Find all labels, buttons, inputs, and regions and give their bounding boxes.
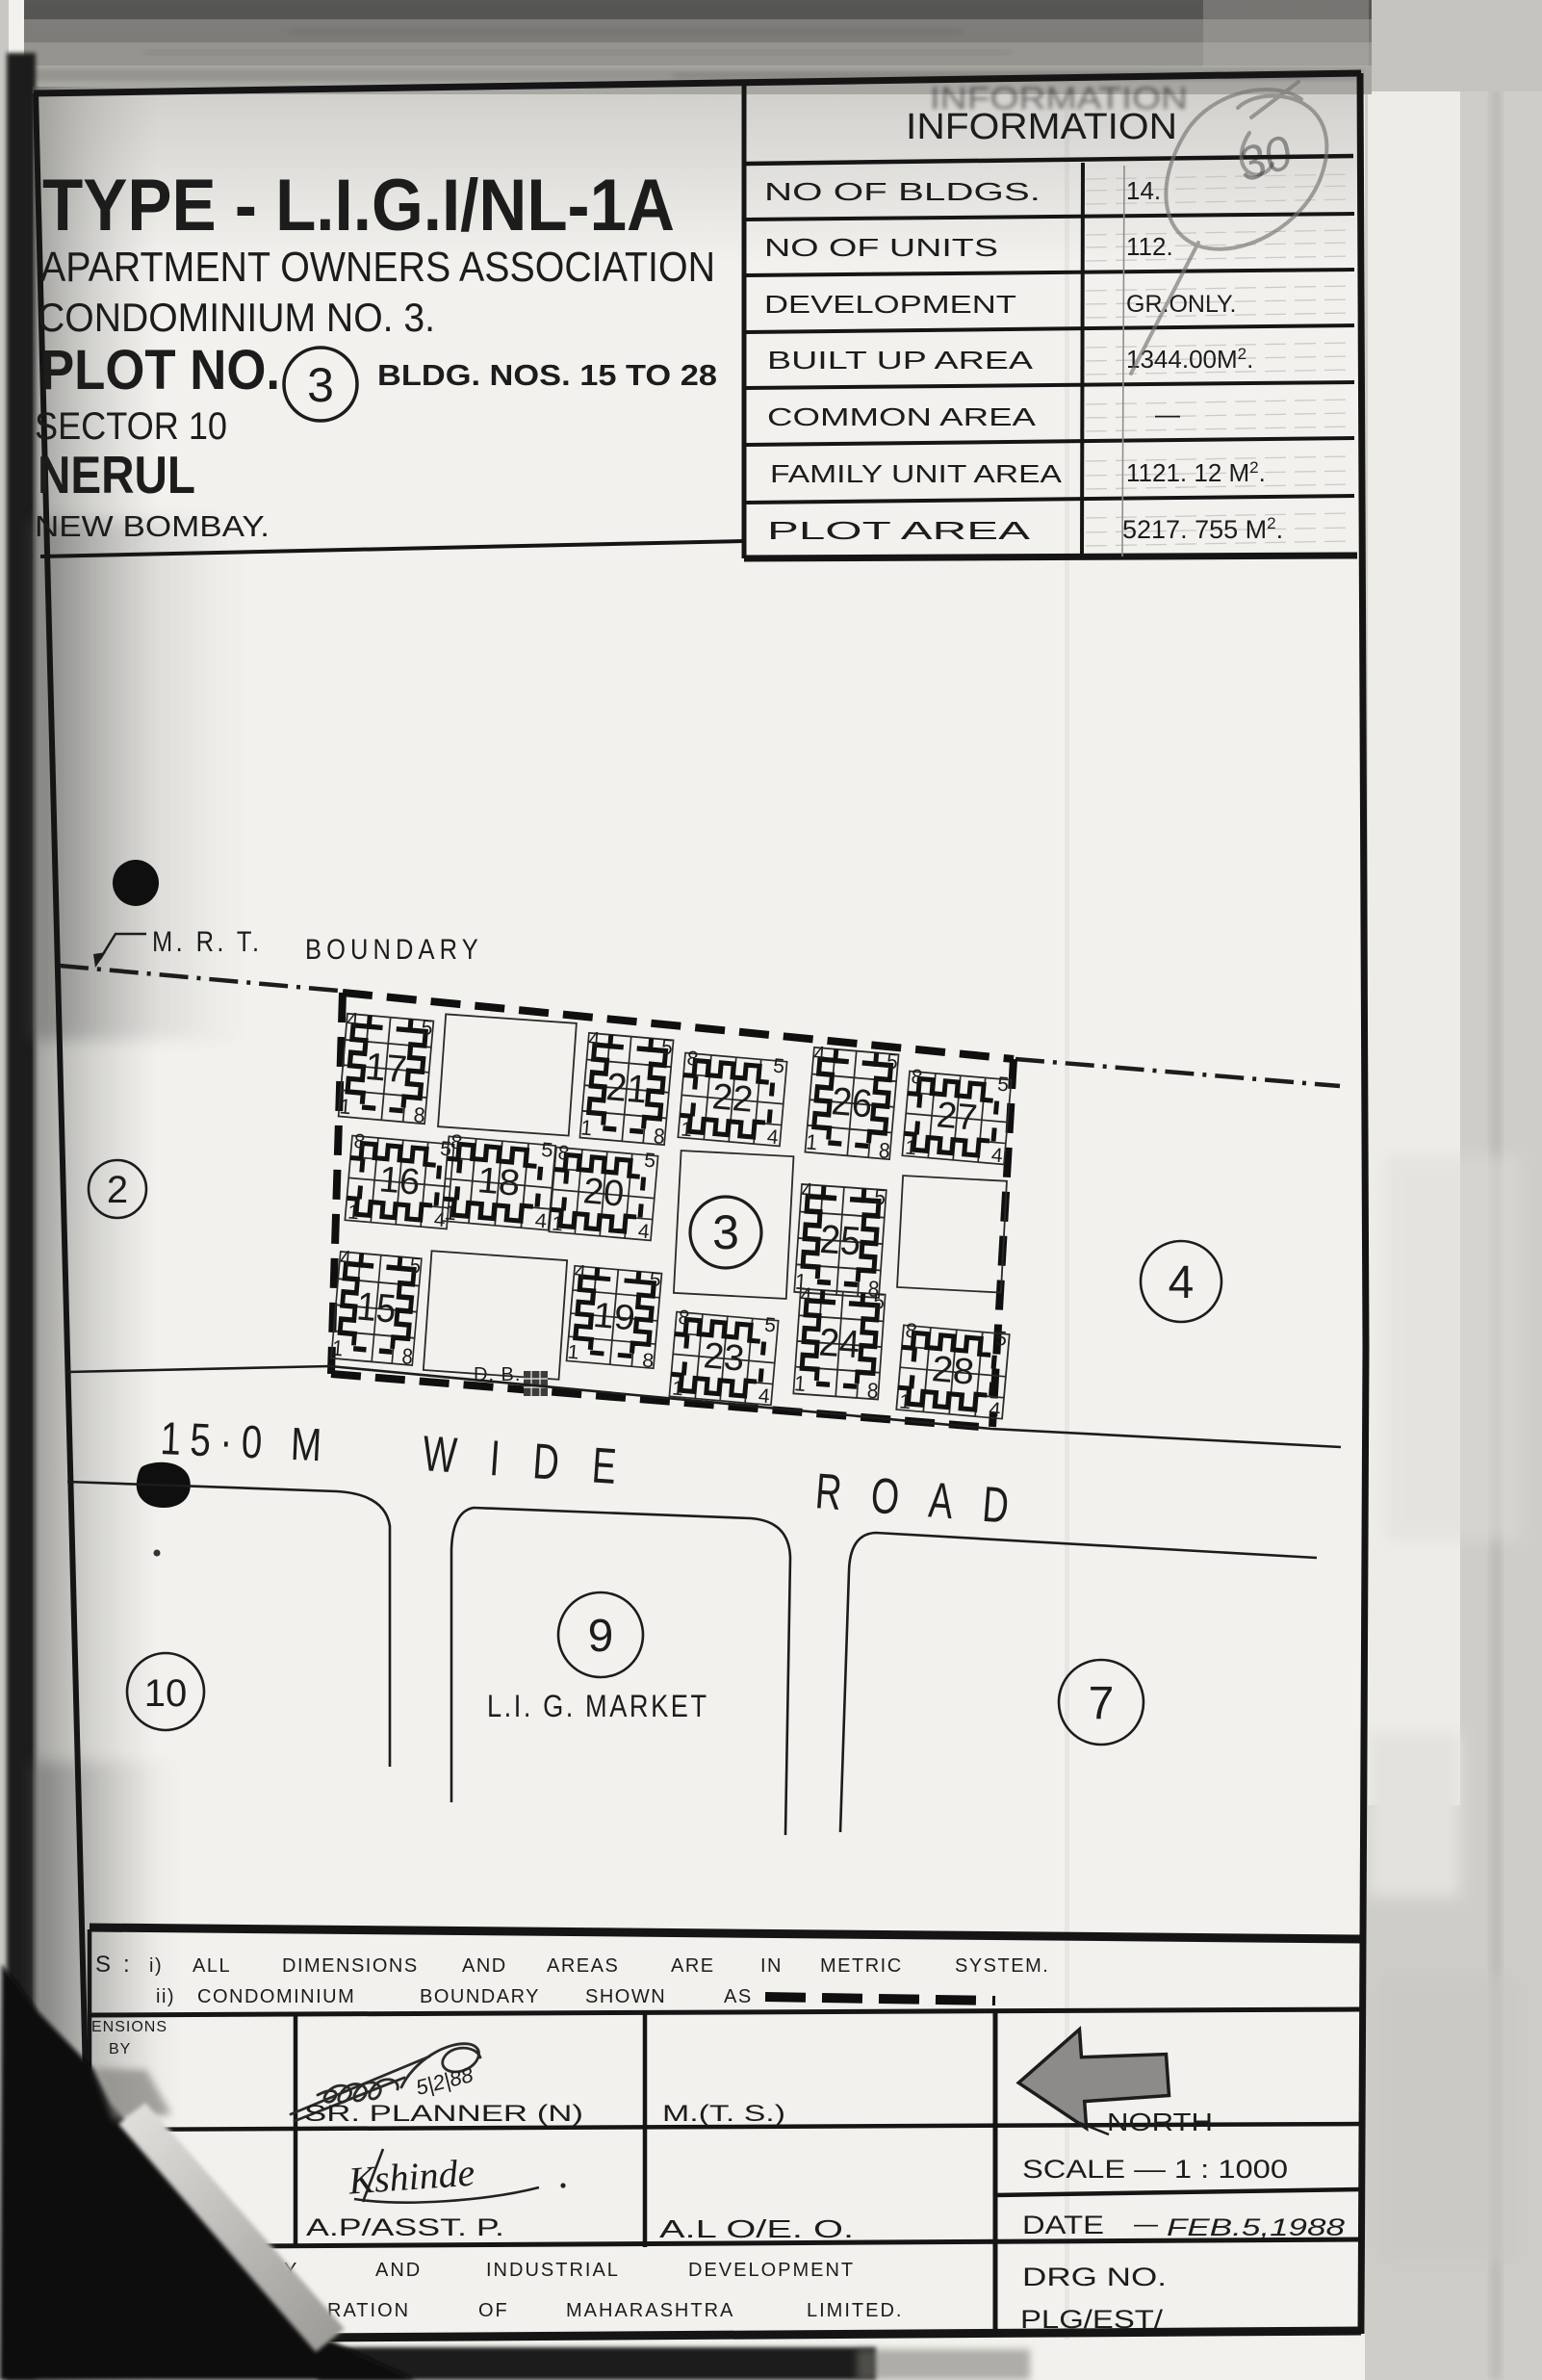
svg-text:5: 5 [421,1015,434,1040]
svg-text:4: 4 [990,1144,1004,1167]
svg-text:25: 25 [818,1217,861,1264]
svg-text:PLOT AREA: PLOT AREA [767,516,1031,545]
svg-text:3: 3 [307,358,334,412]
svg-text:5: 5 [996,1074,1010,1097]
svg-text:8: 8 [353,1130,367,1153]
svg-text:8: 8 [401,1343,414,1369]
svg-text:9: 9 [588,1611,614,1662]
svg-text:15·0 M: 15·0 M [160,1413,332,1472]
svg-text:NERUL: NERUL [38,445,195,504]
svg-text:4: 4 [812,1041,826,1067]
svg-text:L.I. G. MARKET: L.I. G. MARKET [487,1690,709,1724]
svg-text:GR.ONLY.: GR.ONLY. [1126,291,1236,318]
svg-text:28: 28 [930,1349,975,1393]
svg-text:—: — [1155,400,1180,428]
svg-text:1: 1 [579,1115,593,1141]
svg-text:112.: 112. [1126,232,1173,261]
svg-text:4: 4 [800,1282,812,1308]
svg-text:1: 1 [904,1136,917,1159]
svg-text:5: 5 [872,1288,885,1314]
svg-text:4: 4 [534,1209,548,1232]
svg-text:17: 17 [364,1045,409,1091]
svg-text:1: 1 [805,1129,818,1155]
svg-text:14.: 14. [1126,176,1161,205]
svg-text:BLDG. NOS. 15 TO 28: BLDG. NOS. 15 TO 28 [377,358,717,392]
svg-text:FEB.5,1988: FEB.5,1988 [1167,2214,1345,2241]
svg-text:1121. 12 M2.: 1121. 12 M2. [1126,458,1266,487]
svg-text:16: 16 [377,1159,422,1203]
svg-text:5: 5 [540,1138,553,1161]
svg-text:A.L O/E. O.: A.L O/E. O. [659,2214,854,2243]
svg-text:15: 15 [355,1284,398,1332]
svg-text:4: 4 [339,1245,351,1271]
svg-text:8: 8 [653,1124,666,1150]
svg-text:8: 8 [678,1306,691,1330]
svg-text:8: 8 [866,1378,879,1404]
svg-text:BUILT UP AREA: BUILT UP AREA [767,346,1034,375]
svg-text:5: 5 [772,1055,785,1078]
svg-text:PLG/EST/: PLG/EST/ [1020,2305,1164,2334]
svg-text:TYPE - L.I.G.I/NL-1A: TYPE - L.I.G.I/NL-1A [42,165,675,246]
svg-text:4: 4 [801,1177,813,1203]
svg-text:1: 1 [793,1371,806,1397]
svg-text:4: 4 [1169,1257,1195,1308]
svg-text:8: 8 [557,1142,571,1165]
svg-text:8: 8 [413,1102,426,1127]
svg-text:27: 27 [935,1095,979,1139]
svg-text:5: 5 [643,1150,656,1173]
svg-text:BOUNDARY: BOUNDARY [305,933,483,965]
svg-text:8: 8 [450,1130,463,1153]
svg-text:1: 1 [347,1201,360,1224]
svg-text:DEVELOPMENT: DEVELOPMENT [764,290,1016,319]
svg-text:3: 3 [712,1205,739,1259]
svg-text:—: — [1134,2211,1158,2238]
svg-text:8: 8 [641,1350,655,1372]
svg-text:1: 1 [444,1202,457,1225]
svg-text:8: 8 [686,1048,700,1071]
svg-text:1: 1 [339,1094,352,1119]
svg-text:20: 20 [581,1171,626,1215]
svg-text:4: 4 [574,1261,587,1283]
svg-text:4: 4 [766,1125,780,1149]
svg-text:5: 5 [763,1314,777,1337]
svg-text:23: 23 [702,1335,746,1380]
svg-text:8: 8 [905,1319,918,1342]
svg-text:26: 26 [830,1079,874,1126]
svg-text:ii)CONDOMINIUMBOUNDARYSHOWNAS: ii)CONDOMINIUMBOUNDARYSHOWNAS [156,1986,753,2007]
svg-text:PLOT NO.: PLOT NO. [40,339,280,401]
svg-text:5: 5 [874,1184,887,1210]
svg-text:1: 1 [680,1118,693,1141]
svg-text:5: 5 [649,1269,662,1291]
svg-text:4: 4 [988,1398,1001,1422]
svg-text:8: 8 [878,1138,891,1164]
svg-text:1: 1 [551,1212,564,1235]
svg-text:18: 18 [475,1160,522,1204]
svg-text:5: 5 [660,1034,674,1060]
svg-text:19: 19 [592,1296,637,1338]
svg-text:NO OF BLDGS.: NO OF BLDGS. [764,177,1041,206]
svg-text:7: 7 [1089,1678,1115,1729]
svg-text:5: 5 [886,1048,899,1074]
svg-text:FAMILY UNIT AREA: FAMILY UNIT AREA [770,459,1063,488]
svg-text:ENSIONS: ENSIONS [91,2019,167,2035]
svg-text:22: 22 [710,1076,755,1121]
svg-text:A.P/ASST. P.: A.P/ASST. P. [306,2214,504,2241]
svg-text:NEW BOMBAY.: NEW BOMBAY. [35,509,270,543]
svg-text:4: 4 [637,1220,651,1243]
svg-text:24: 24 [817,1320,861,1366]
svg-text:1: 1 [331,1334,344,1360]
svg-text:DATE: DATE [1022,2211,1104,2239]
svg-text:4: 4 [587,1026,601,1052]
svg-text:DRG NO.: DRG NO. [1022,2263,1167,2291]
svg-text:10: 10 [144,1672,188,1715]
svg-text:NO OF UNITS: NO OF UNITS [764,233,998,262]
svg-text:COMMON AREA: COMMON AREA [767,402,1037,431]
svg-text:CONDOMINIUM NO. 3.: CONDOMINIUM NO. 3. [38,295,435,340]
svg-text:M. R. T.: M. R. T. [152,925,263,957]
svg-text:SCALE — 1 : 1000: SCALE — 1 : 1000 [1022,2155,1288,2184]
svg-text:1: 1 [567,1341,580,1363]
svg-text:1: 1 [898,1390,912,1413]
svg-text:2: 2 [107,1169,128,1211]
svg-text:SR. PLANNER (N): SR. PLANNER (N) [304,2101,583,2127]
svg-text:1: 1 [671,1377,684,1400]
svg-text:5: 5 [994,1327,1008,1350]
svg-text:8: 8 [911,1066,924,1089]
svg-text:5: 5 [409,1252,422,1278]
svg-text:INFORMATION: INFORMATION [906,107,1177,147]
svg-text:4: 4 [346,1007,359,1032]
svg-text:4: 4 [758,1384,771,1408]
svg-text:M.(T. S.): M.(T. S.) [662,2101,785,2127]
svg-text:BY: BY [109,2041,131,2057]
svg-text:5217. 755 M2.: 5217. 755 M2. [1122,514,1283,544]
svg-text:NORTH: NORTH [1107,2108,1213,2136]
svg-text:21: 21 [604,1065,649,1112]
svg-text:APARTMENT OWNERS ASSOCIATION: APARTMENT OWNERS ASSOCIATION [40,244,715,291]
svg-text:SECTOR 10: SECTOR 10 [35,405,227,448]
